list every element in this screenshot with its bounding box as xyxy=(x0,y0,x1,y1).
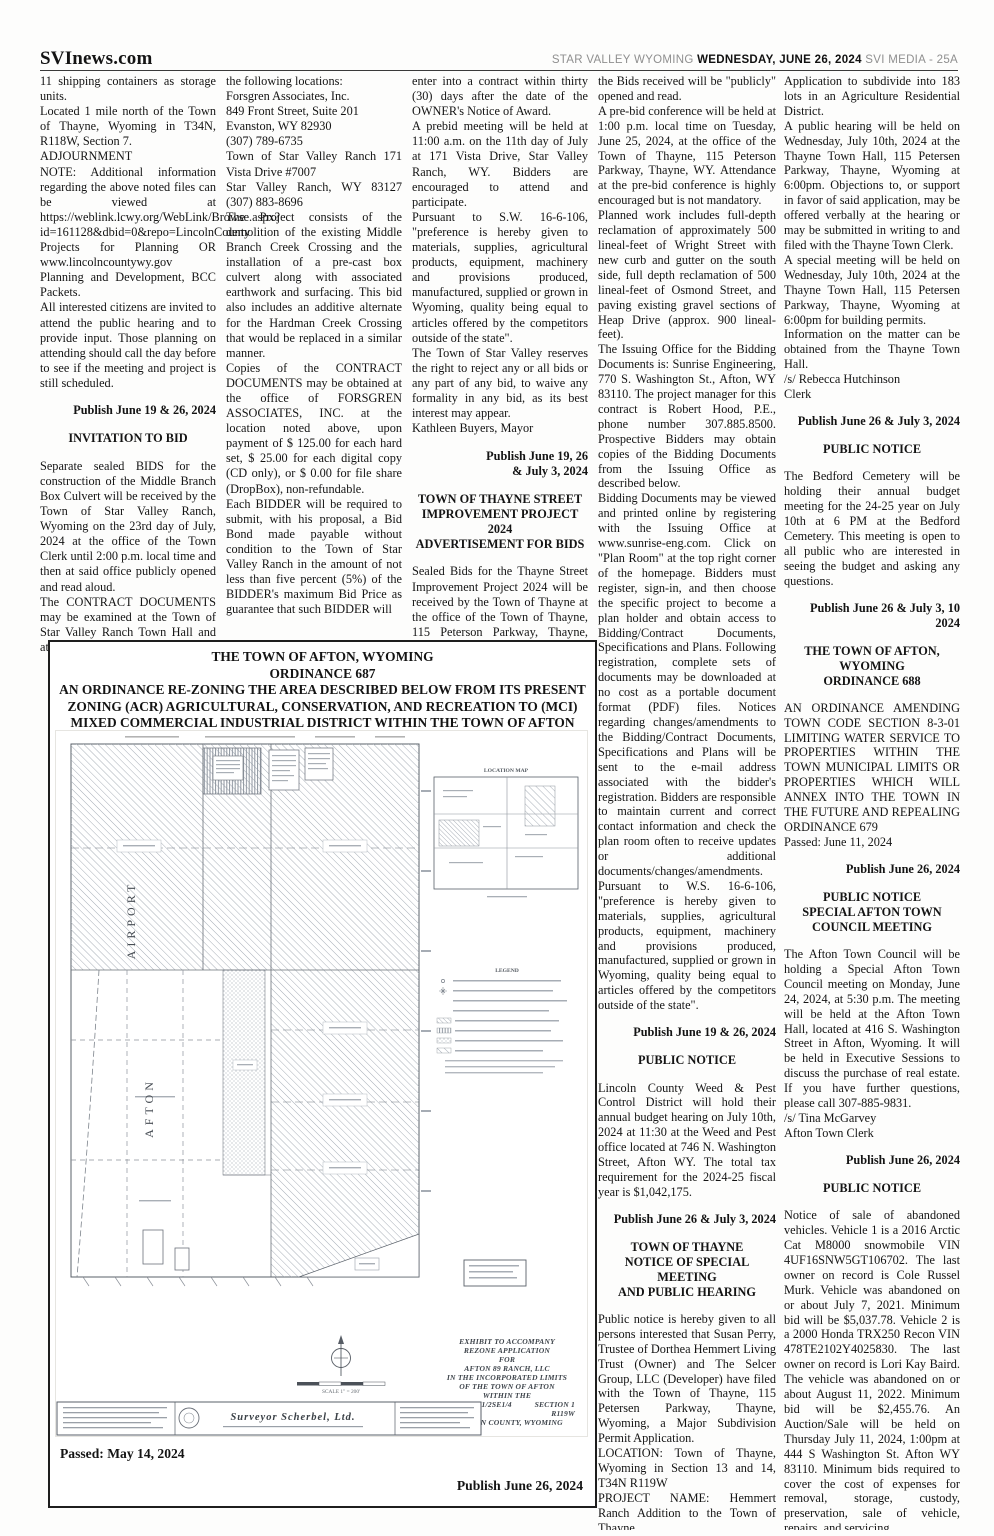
surveyor-title-bar: Surveyor Scherbel, Ltd. xyxy=(57,1402,481,1435)
masthead-date: WEDNESDAY, JUNE 26, 2024 xyxy=(697,54,862,66)
column-2: the following locations: Forsgren Associ… xyxy=(226,74,402,617)
signature-line: Afton Town Clerk xyxy=(784,1126,960,1141)
masthead-dateline: STAR VALLEY WYOMING WEDNESDAY, JUNE 26, … xyxy=(552,54,958,66)
column-3: enter into a contract within thirty (30)… xyxy=(412,74,588,685)
publish-line: Publish June 26, 2024 xyxy=(784,1153,960,1168)
ordinance-title-town: THE TOWN OF AFTON, WYOMING xyxy=(58,649,587,666)
notice-paragraph: A special meeting will be held on Wednes… xyxy=(784,253,960,328)
notice-heading: PUBLIC NOTICE SPECIAL AFTON TOWN COUNCIL… xyxy=(784,890,960,935)
notice-paragraph: The Bedford Cemetery will be holding the… xyxy=(784,469,960,588)
notice-paragraph: Information on the matter can be obtaine… xyxy=(784,327,960,372)
location-map-label: LOCATION MAP xyxy=(484,768,529,774)
location-map-inset: LOCATION MAP xyxy=(434,768,578,897)
notice-paragraph: 849 Front Street, Suite 201 xyxy=(226,104,402,119)
notice-paragraph: NOTE: Additional information regarding t… xyxy=(40,165,216,240)
fence-ticks xyxy=(83,1277,313,1286)
afton-area-label: AFTON xyxy=(142,1078,156,1138)
notice-paragraph: Pursuant to S.W. 16-6-106, "preference i… xyxy=(412,210,588,346)
scale-bar: SCALE 1" = 200' xyxy=(297,1382,385,1395)
notice-heading: PUBLIC NOTICE xyxy=(784,1181,960,1196)
notice-paragraph: The Project consists of the demolition o… xyxy=(226,210,402,361)
ordinance-title-body: AN ORDINANCE RE-ZONING THE AREA DESCRIBE… xyxy=(58,682,587,732)
notice-paragraph: Located 1 mile north of the Town of Thay… xyxy=(40,104,216,149)
notice-paragraph: Each BIDDER will be required to submit, … xyxy=(226,497,402,618)
notice-paragraph: The Afton Town Council will be holding a… xyxy=(784,947,960,1111)
notice-paragraph: Passed: June 11, 2024 xyxy=(784,835,960,850)
notice-paragraph: Application to subdivide into 183 lots i… xyxy=(784,74,960,119)
masthead-region: STAR VALLEY WYOMING xyxy=(552,54,697,66)
notice-paragraph: ADJOURNMENT xyxy=(40,149,216,164)
notice-paragraph: Star Valley Ranch, WY 83127 (307) 883-86… xyxy=(226,180,402,210)
notice-paragraph: AN ORDINANCE AMENDING TOWN CODE SECTION … xyxy=(784,701,960,835)
notice-heading: PUBLIC NOTICE xyxy=(598,1053,776,1068)
masthead-rule xyxy=(40,70,958,71)
ordinance-687-box: THE TOWN OF AFTON, WYOMING ORDINANCE 687… xyxy=(48,640,597,1508)
notice-paragraph: The Town of Star Valley reserves the rig… xyxy=(412,346,588,421)
exhibit-line: AFTON 89 RANCH, LLC xyxy=(463,1364,550,1373)
plat-main-drawing: AIRPORT AFTON xyxy=(71,744,431,1286)
publish-line: Publish June 26, 2024 xyxy=(784,862,960,877)
signature-line: Kathleen Buyers, Mayor xyxy=(412,421,588,436)
publish-line: Publish June 26 & July 3, 10 2024 xyxy=(784,601,960,631)
notice-paragraph: Notice of sale of abandoned vehicles. Ve… xyxy=(784,1208,960,1530)
plat-legend: LEGEND xyxy=(437,968,567,1073)
notice-paragraph: The Issuing Office for the Bidding Docum… xyxy=(598,342,776,491)
notice-paragraph: the following locations: xyxy=(226,74,402,89)
notice-paragraph: PROJECT NAME: Hemmert Ranch Addition to … xyxy=(598,1491,776,1530)
notice-paragraph: A prebid meeting will be held at 11:00 a… xyxy=(412,119,588,210)
publish-line: Publish June 26 & July 3, 2024 xyxy=(784,414,960,429)
ordinance-title: THE TOWN OF AFTON, WYOMING ORDINANCE 687… xyxy=(58,649,587,732)
notice-paragraph: enter into a contract within thirty (30)… xyxy=(412,74,588,119)
surveyor-name: Surveyor Scherbel, Ltd. xyxy=(230,1412,355,1423)
notice-paragraph: All interested citizens are invited to a… xyxy=(40,300,216,391)
exhibit-line: IN THE INCORPORATED LIMITS xyxy=(446,1373,567,1382)
column-5: Application to subdivide into 183 lots i… xyxy=(784,74,960,1530)
ordinance-title-number: ORDINANCE 687 xyxy=(58,666,587,683)
signature-line: Clerk xyxy=(784,387,960,402)
masthead-edition: SVI MEDIA - 25A xyxy=(862,54,958,66)
notice-paragraph: Town of Star Valley Ranch 171 Vista Driv… xyxy=(226,149,402,179)
exhibit-line: REZONE APPLICATION xyxy=(463,1346,551,1355)
notice-paragraph: Lincoln County Weed & Pest Control Distr… xyxy=(598,1081,776,1200)
legend-label: LEGEND xyxy=(495,968,519,974)
north-arrow-icon xyxy=(332,1335,351,1376)
notice-paragraph: A public hearing will be held on Wednesd… xyxy=(784,119,960,253)
notice-paragraph: Bidding Documents may be viewed and prin… xyxy=(598,491,776,879)
ordinance-publish-line: Publish June 26, 2024 xyxy=(457,1478,583,1494)
notice-paragraph: Separate sealed BIDS for the constructio… xyxy=(40,459,216,595)
publish-line: Publish June 26 & July 3, 2024 xyxy=(598,1212,776,1227)
notice-heading: TOWN OF THAYNE NOTICE OF SPECIAL MEETING… xyxy=(598,1240,776,1300)
notice-paragraph: Public notice is hereby given to all per… xyxy=(598,1312,776,1446)
exhibit-line: FOR xyxy=(499,1355,515,1364)
exhibit-section: SECTION 1 xyxy=(535,1400,575,1409)
signature-line: /s/ Tina McGarvey xyxy=(784,1111,960,1126)
notice-heading: THE TOWN OF AFTON, WYOMING ORDINANCE 688 xyxy=(784,644,960,689)
notice-paragraph: Evanston, WY 82930 xyxy=(226,119,402,134)
publish-line: Publish June 19 & 26, 2024 xyxy=(40,403,216,418)
scale-label: SCALE 1" = 200' xyxy=(322,1389,360,1395)
notice-paragraph: 11 shipping containers as storage units. xyxy=(40,74,216,104)
signature-line: /s/ Rebecca Hutchinson xyxy=(784,372,960,387)
publish-line: Publish June 19, 26 & July 3, 2024 xyxy=(412,449,588,479)
notice-paragraph: the Bids received will be "publicly" ope… xyxy=(598,74,776,104)
plat-top-annotations xyxy=(125,736,405,738)
notice-paragraph: Projects for Planning OR www.lincolncoun… xyxy=(40,240,216,300)
column-4: the Bids received will be "publicly" ope… xyxy=(598,74,776,1530)
exhibit-line: OF THE TOWN OF AFTON xyxy=(459,1382,555,1391)
publish-line: Publish June 19 & 26, 2024 xyxy=(598,1025,776,1040)
notice-paragraph: A pre-bid conference will be held at 1:0… xyxy=(598,104,776,208)
notice-heading: INVITATION TO BID xyxy=(40,431,216,446)
newspaper-page: SVInews.com STAR VALLEY WYOMING WEDNESDA… xyxy=(0,0,994,1536)
exhibit-line: EXHIBIT TO ACCOMPANY xyxy=(458,1337,556,1346)
notice-heading: TOWN OF THAYNE STREET IMPROVEMENT PROJEC… xyxy=(412,492,588,552)
column-1: 11 shipping containers as storage units.… xyxy=(40,74,216,655)
ordinance-passed-date: Passed: May 14, 2024 xyxy=(60,1446,185,1462)
notice-paragraph: Planned work includes full-depth reclama… xyxy=(598,208,776,342)
masthead-brand: SVInews.com xyxy=(40,48,153,70)
notice-paragraph: Copies of the CONTRACT DOCUMENTS may be … xyxy=(226,361,402,497)
notice-paragraph: (307) 789-6735 xyxy=(226,134,402,149)
notice-paragraph: Pursuant to W.S. 16-6-106, "preference i… xyxy=(598,879,776,1013)
rezone-plat-map: AIRPORT AFTON SCALE 1" = 200' LOCATIO xyxy=(55,730,588,1437)
airport-area-label: AIRPORT xyxy=(124,881,138,960)
notice-heading: PUBLIC NOTICE xyxy=(784,442,960,457)
notice-paragraph: LOCATION: Town of Thayne, Wyoming in Sec… xyxy=(598,1446,776,1491)
exhibit-range: R119W xyxy=(550,1409,576,1418)
reference-plat-box xyxy=(464,1260,526,1286)
notice-paragraph: Forsgren Associates, Inc. xyxy=(226,89,402,104)
exhibit-line: WITHIN THE xyxy=(483,1391,531,1400)
